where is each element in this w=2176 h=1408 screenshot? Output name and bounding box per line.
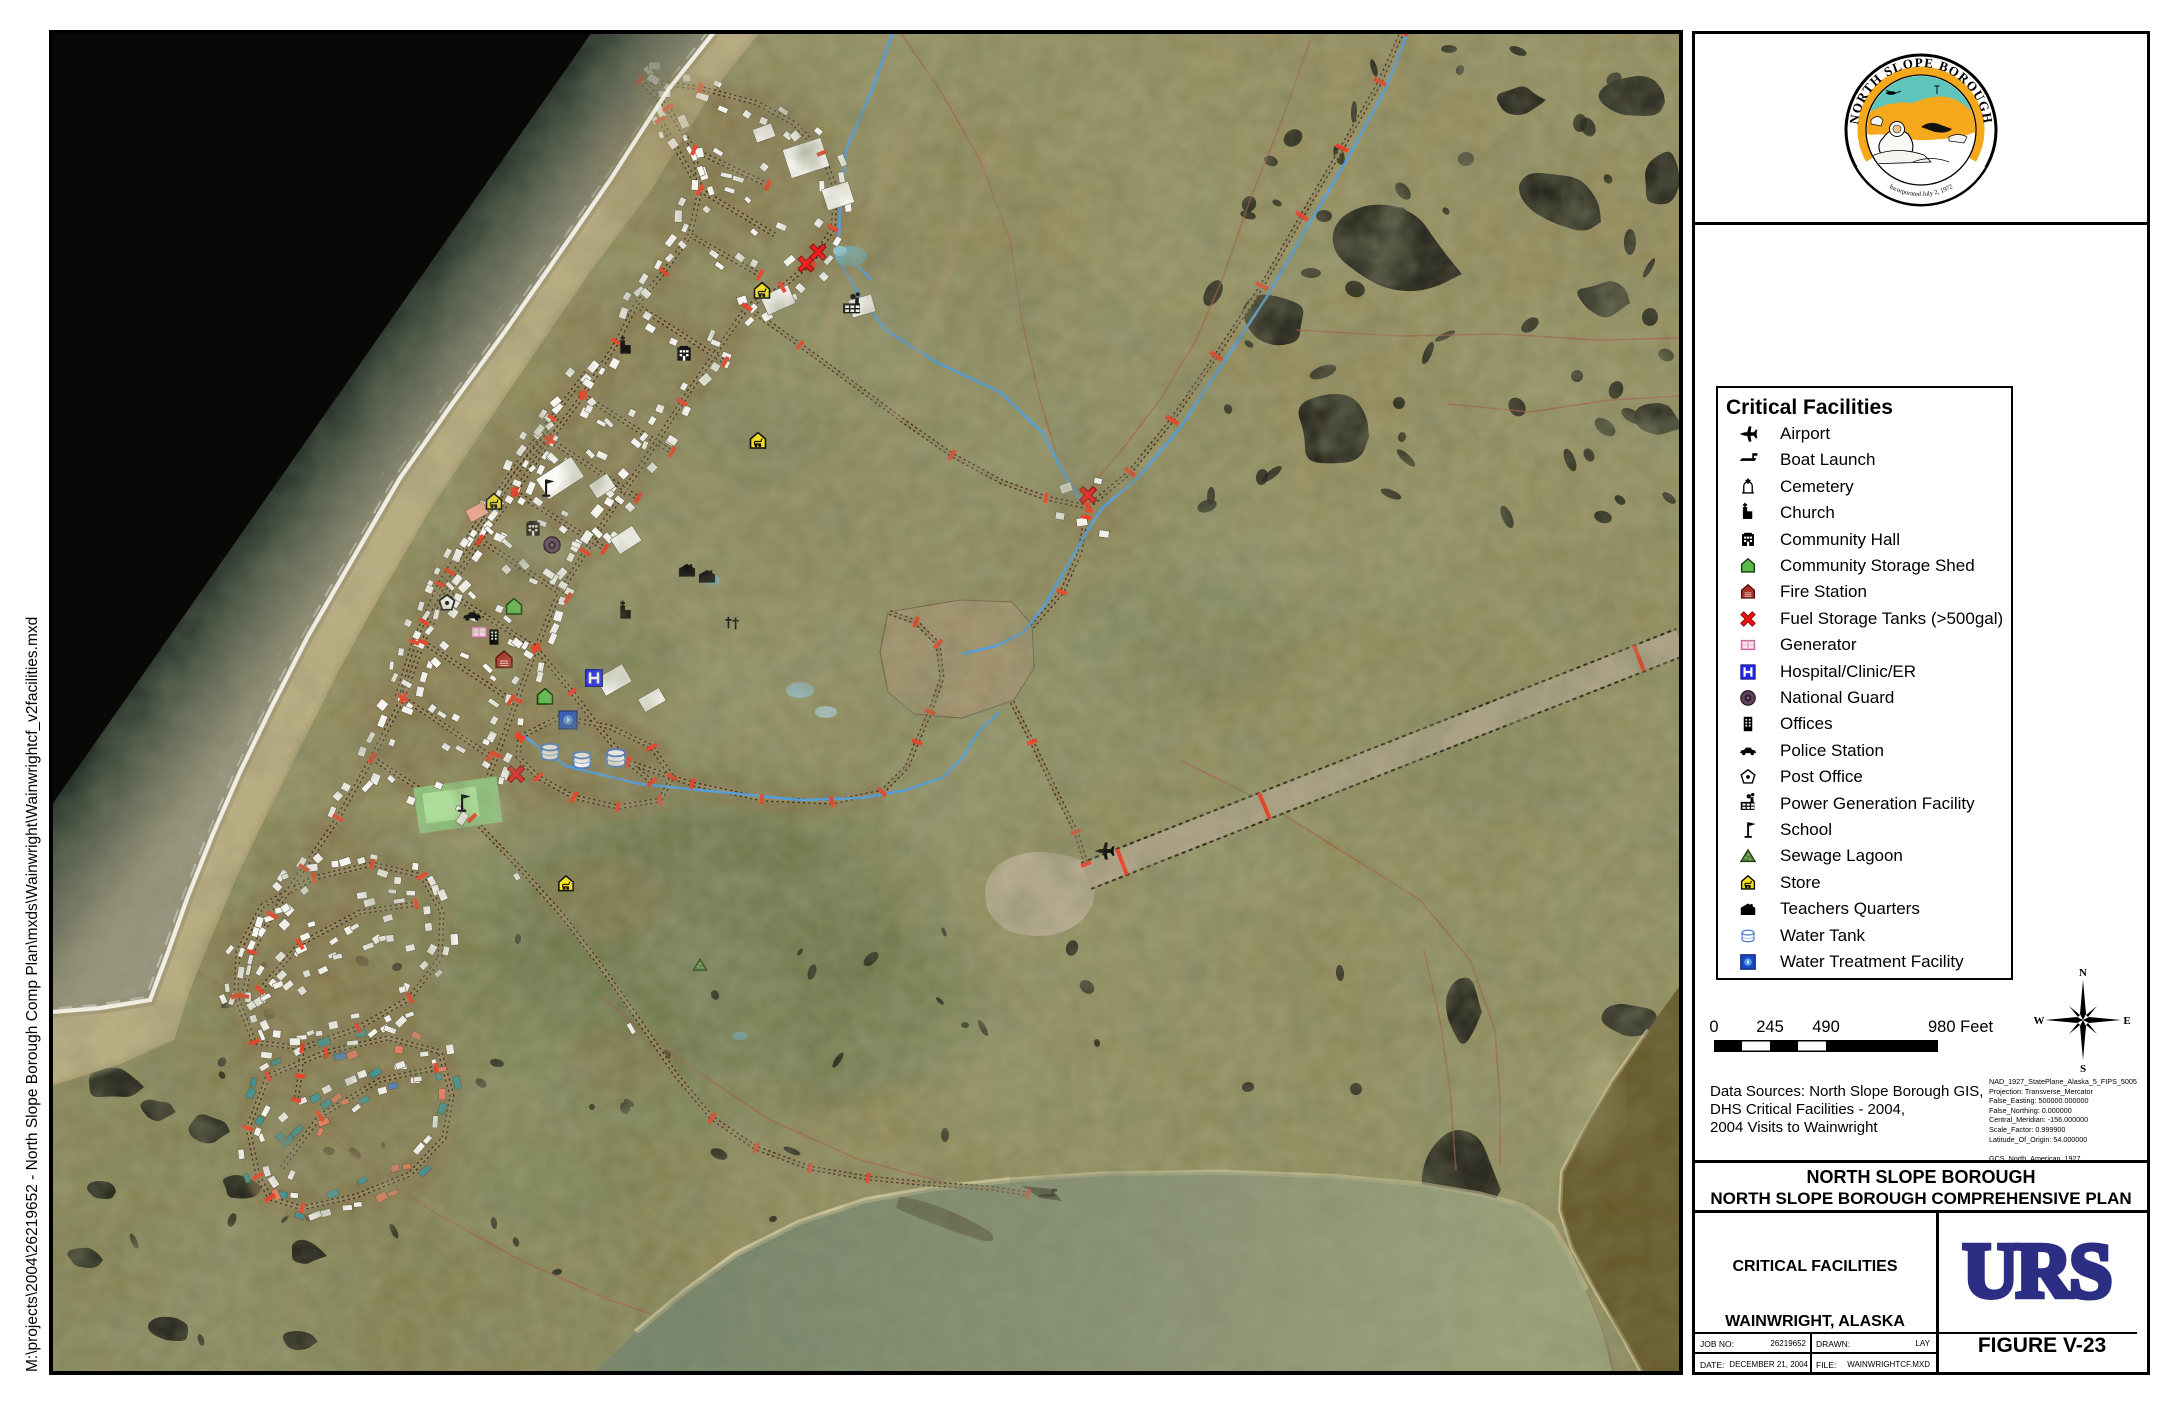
svg-text:980 Feet: 980 Feet: [1928, 1018, 1994, 1036]
svg-text:E: E: [2123, 1015, 2130, 1027]
svg-text:N: N: [2079, 967, 2087, 979]
svg-text:245: 245: [1756, 1018, 1784, 1036]
svg-text:0: 0: [1709, 1018, 1718, 1036]
svg-text:490: 490: [1812, 1018, 1840, 1036]
svg-text:S: S: [2080, 1063, 2086, 1075]
svg-text:W: W: [2034, 1015, 2045, 1027]
